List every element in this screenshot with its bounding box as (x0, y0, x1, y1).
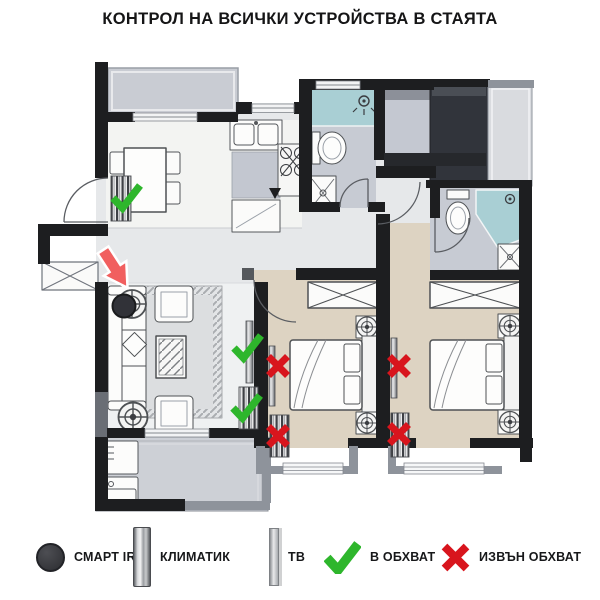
balcony-appliances (104, 441, 138, 504)
wardrobe-block (430, 84, 488, 184)
entry-closet (42, 262, 98, 290)
bed-2 (430, 336, 520, 414)
legend-label: ТВ (288, 550, 305, 564)
shaft (488, 86, 532, 186)
legend-label: СМАРТ IR (74, 550, 136, 564)
legend: СМАРТ IR КЛИМАТИК ТВ В ОБХВАТ ИЗВЪН ОБХВ… (0, 524, 600, 596)
shower-1 (310, 88, 376, 126)
smart-ir-hub-dot (113, 295, 136, 318)
cross-icon (441, 543, 470, 572)
legend-label: КЛИМАТИК (160, 550, 230, 564)
check-icon (324, 541, 361, 574)
tv-icon (269, 528, 279, 586)
ac-unit-icon (133, 527, 151, 587)
legend-item-out-of-range: ИЗВЪН ОБХВАТ (441, 524, 581, 590)
legend-item-in-range: В ОБХВАТ (324, 524, 435, 590)
floor-plan (0, 0, 600, 600)
legend-item-ac: КЛИМАТИК (133, 524, 230, 590)
smart-ir-dot-icon (36, 543, 65, 572)
legend-item-tv: ТВ (269, 524, 305, 590)
ceiling-lamp-bottom (119, 403, 148, 432)
legend-item-smart-ir: СМАРТ IR (36, 524, 136, 590)
legend-label: В ОБХВАТ (370, 550, 435, 564)
legend-label: ИЗВЪН ОБХВАТ (479, 550, 581, 564)
bed-1 (290, 336, 378, 414)
sink-2 (498, 244, 522, 270)
balcony-top-floor (108, 68, 238, 114)
toilet-2 (447, 190, 469, 199)
coffee-table (156, 336, 186, 378)
